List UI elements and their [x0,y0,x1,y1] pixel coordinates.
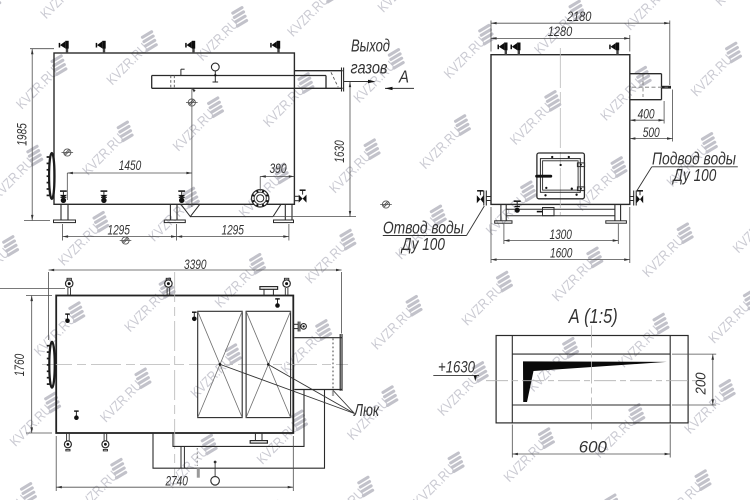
svg-text:1450: 1450 [119,157,142,173]
svg-text:3390: 3390 [184,256,207,272]
svg-text:+1630: +1630 [438,359,476,377]
svg-text:2180: 2180 [566,8,591,24]
svg-text:1295: 1295 [221,222,244,238]
svg-text:500: 500 [643,124,660,140]
svg-text:Выход: Выход [351,36,390,56]
svg-text:2740: 2740 [165,473,188,489]
svg-text:1300: 1300 [549,226,572,242]
svg-text:390: 390 [270,160,287,176]
svg-text:1280: 1280 [548,23,573,39]
svg-text:1600: 1600 [550,244,573,260]
svg-text:400: 400 [638,106,655,122]
svg-text:1760: 1760 [11,354,27,377]
svg-text:газов: газов [351,58,388,78]
svg-text:1985: 1985 [14,123,30,146]
svg-text:Ду 100: Ду 100 [672,165,717,185]
svg-text:Ду 100: Ду 100 [400,234,445,254]
svg-text:1630: 1630 [331,140,347,163]
svg-text:600: 600 [579,438,608,456]
svg-text:А: А [398,67,409,87]
svg-text:А (1:5): А (1:5) [568,306,618,328]
svg-text:1295: 1295 [107,222,130,238]
svg-text:200: 200 [693,372,710,395]
svg-text:Люк: Люк [353,400,379,420]
